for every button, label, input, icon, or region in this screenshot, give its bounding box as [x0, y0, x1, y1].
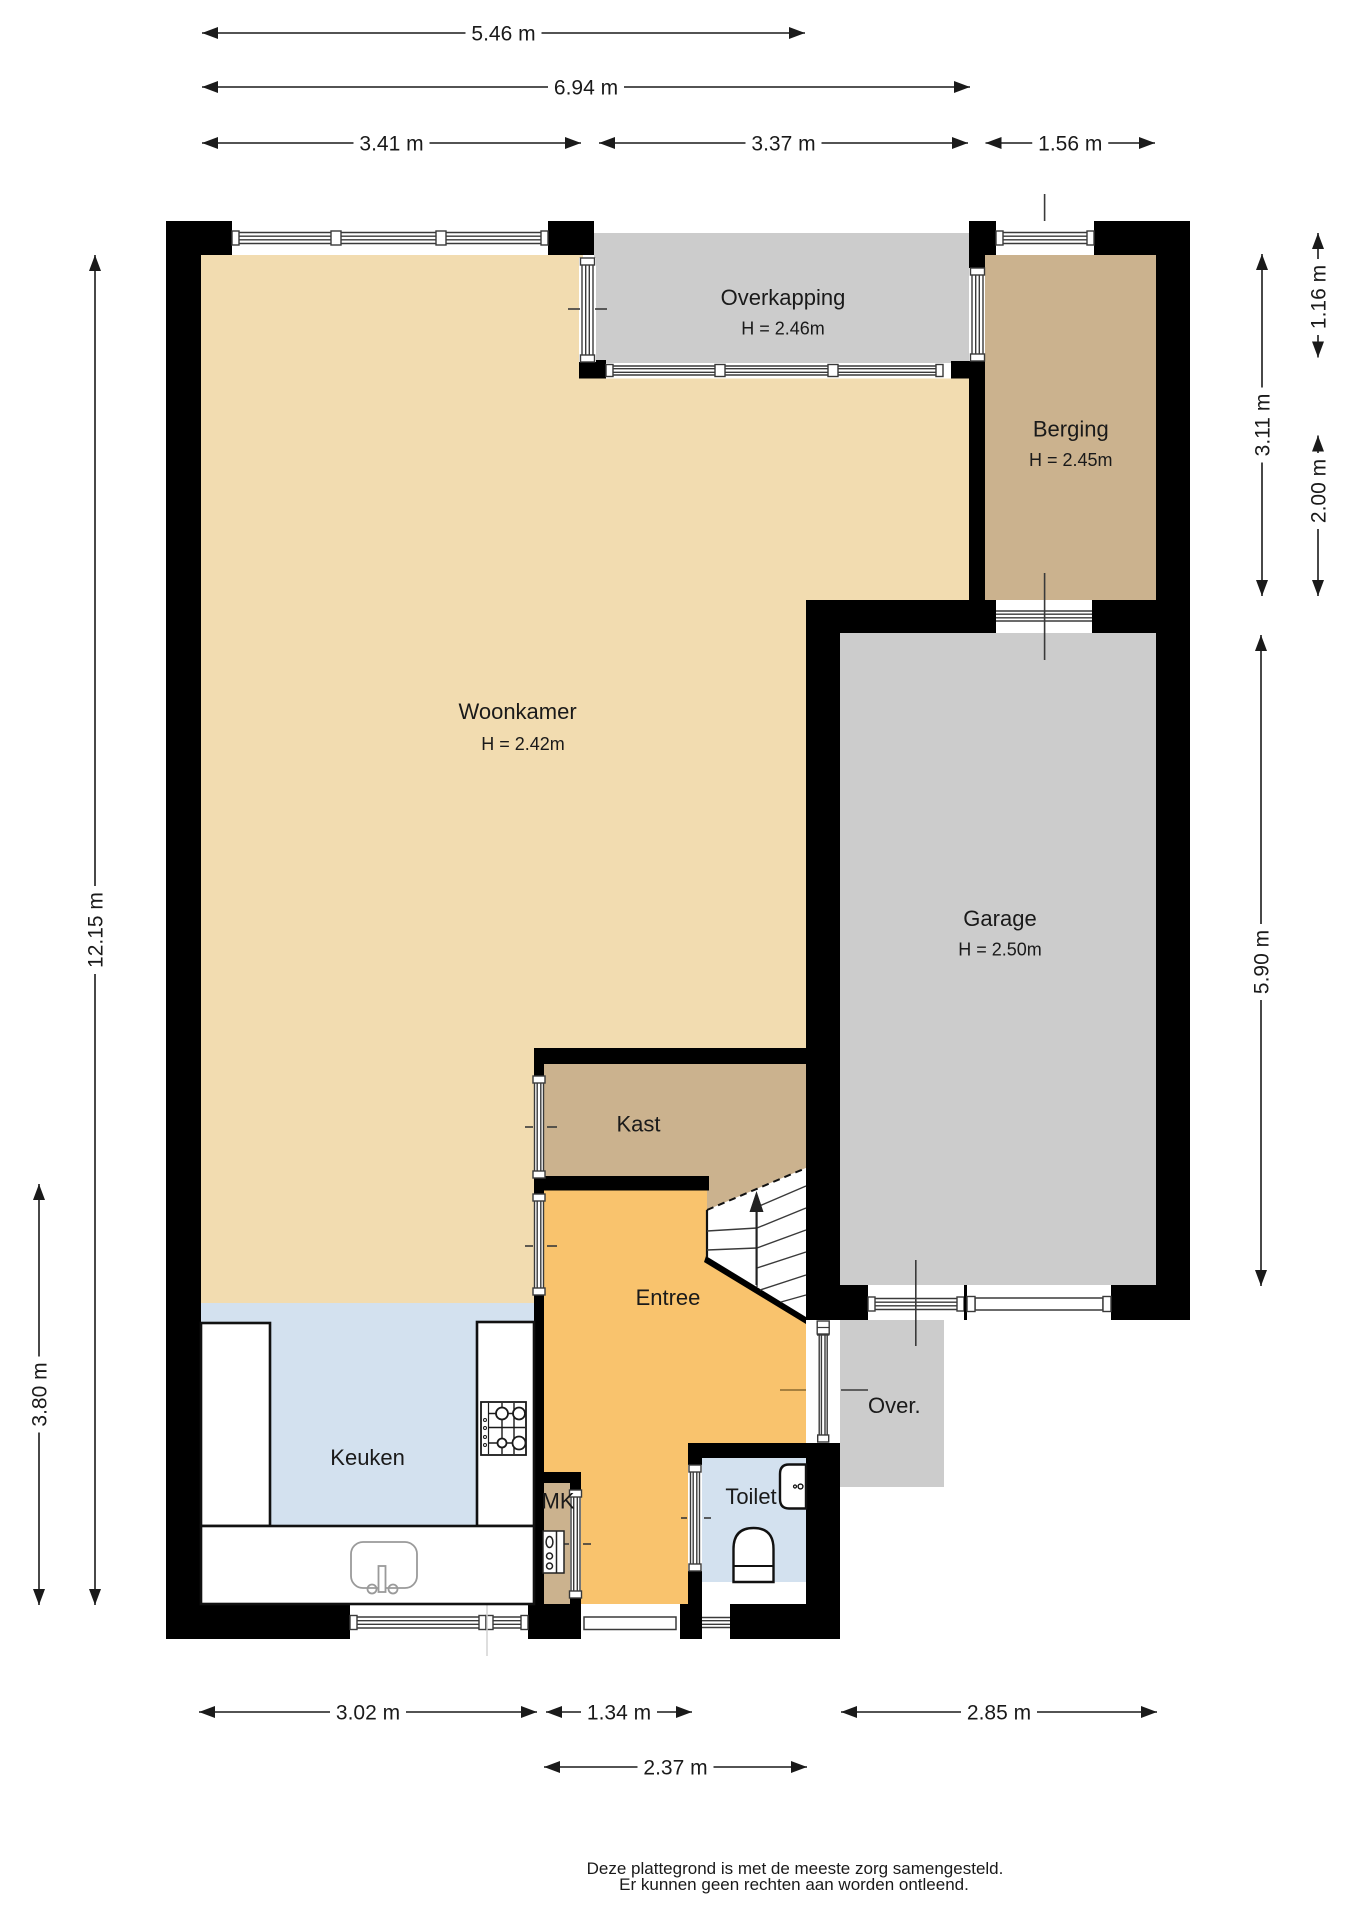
svg-text:3.02 m: 3.02 m: [336, 1702, 400, 1725]
svg-text:Er kunnen geen rechten aan wor: Er kunnen geen rechten aan worden ontlee…: [619, 1875, 969, 1894]
svg-text:H = 2.46m: H = 2.46m: [741, 319, 825, 339]
svg-text:3.11 m: 3.11 m: [1252, 394, 1275, 457]
svg-text:5.90 m: 5.90 m: [1251, 930, 1274, 994]
svg-text:6.94 m: 6.94 m: [554, 77, 618, 100]
svg-text:Over.: Over.: [868, 1393, 921, 1418]
svg-text:H = 2.42m: H = 2.42m: [481, 734, 565, 754]
svg-text:2.85 m: 2.85 m: [967, 1702, 1031, 1725]
svg-text:Entree: Entree: [636, 1285, 701, 1310]
svg-text:5.46 m: 5.46 m: [471, 23, 535, 46]
svg-text:Toilet: Toilet: [725, 1484, 776, 1509]
svg-text:MK: MK: [542, 1489, 575, 1514]
svg-text:2.37 m: 2.37 m: [643, 1757, 707, 1780]
svg-text:1.16 m: 1.16 m: [1308, 265, 1331, 329]
svg-text:H = 2.50m: H = 2.50m: [958, 940, 1042, 960]
svg-text:3.37 m: 3.37 m: [751, 133, 815, 156]
svg-text:Woonkamer: Woonkamer: [458, 699, 576, 724]
svg-text:Overkapping: Overkapping: [721, 285, 846, 310]
svg-text:H = 2.45m: H = 2.45m: [1029, 450, 1113, 470]
svg-text:2.00 m: 2.00 m: [1308, 459, 1331, 523]
svg-text:12.15 m: 12.15 m: [85, 892, 108, 968]
svg-text:3.41 m: 3.41 m: [359, 133, 423, 156]
svg-text:Berging: Berging: [1033, 417, 1109, 442]
svg-text:1.34 m: 1.34 m: [587, 1702, 651, 1725]
svg-text:Kast: Kast: [616, 1112, 660, 1137]
svg-text:1.56 m: 1.56 m: [1038, 133, 1102, 156]
svg-text:3.80 m: 3.80 m: [29, 1362, 52, 1426]
svg-text:Garage: Garage: [963, 906, 1036, 931]
svg-text:Keuken: Keuken: [330, 1445, 405, 1470]
